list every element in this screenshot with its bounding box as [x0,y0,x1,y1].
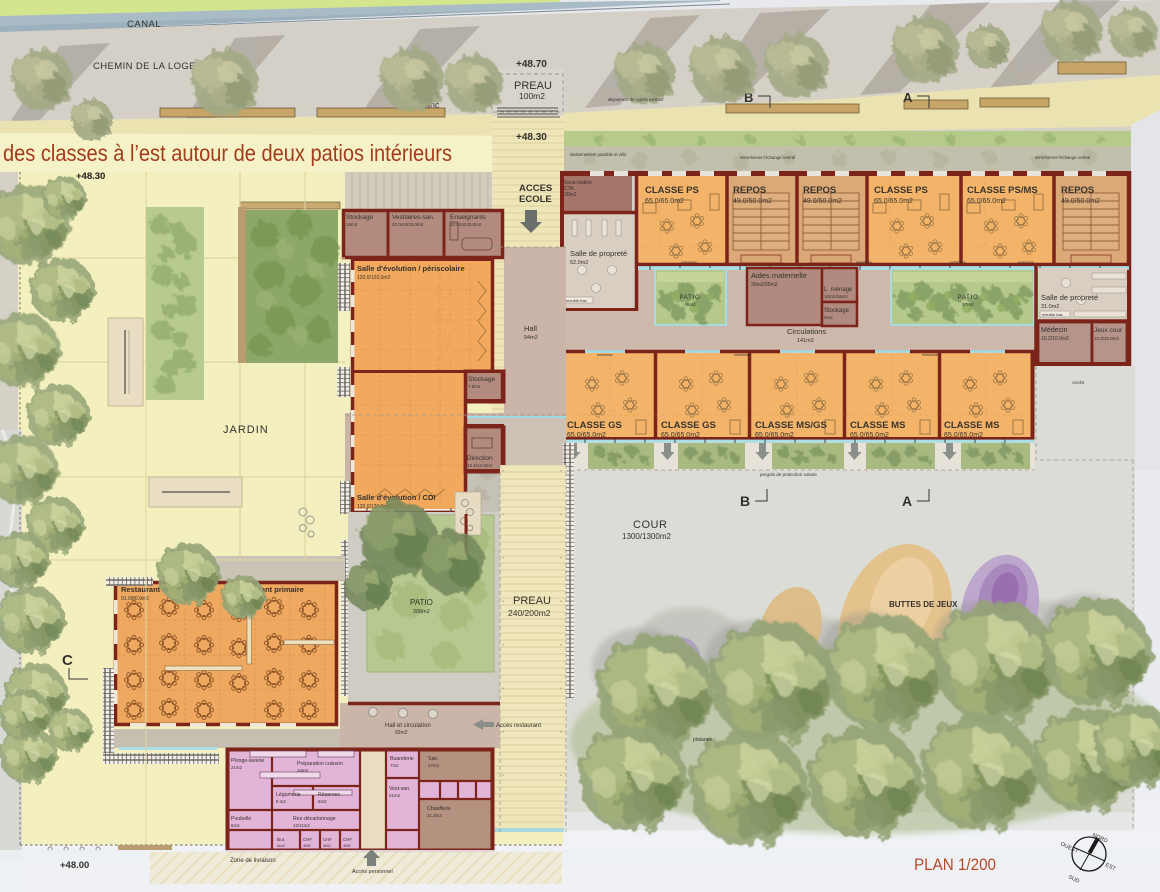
svg-text:CLASSE PS/MS: CLASSE PS/MS [967,185,1038,196]
svg-text:Légumerie: Légumerie [276,792,301,798]
svg-text:20.0m2/20.0m2: 20.0m2/20.0m2 [392,222,424,227]
svg-text:52.0m2: 52.0m2 [570,260,588,266]
svg-text:CLASSE MS: CLASSE MS [850,420,905,431]
svg-text:57m2: 57m2 [962,302,974,307]
svg-text:CHEMIN DE LA LOGE: CHEMIN DE LA LOGE [93,61,196,72]
svg-text:Stockage: Stockage [468,376,495,383]
svg-text:4m2: 4m2 [277,843,286,848]
svg-text:10m2/16m2: 10m2/16m2 [824,294,848,299]
svg-text:ACCES: ACCES [519,183,552,194]
svg-text:PLAN 1/200: PLAN 1/200 [914,855,996,874]
svg-text:CANAL: CANAL [127,19,161,30]
svg-text:CLASSE MS/GS: CLASSE MS/GS [755,420,827,431]
svg-text:entretoise: entretoise [950,261,966,265]
svg-text:7m2: 7m2 [390,763,399,768]
svg-text:entretoise: entretoise [597,353,613,357]
svg-text:BUTTES DE JEUX: BUTTES DE JEUX [889,600,958,609]
svg-text:Accès restaurant: Accès restaurant [496,723,541,729]
svg-text:CLASSE GS: CLASSE GS [661,420,716,431]
svg-text:alignement de cyprès existant: alignement de cyprès existant [608,97,664,102]
svg-text:CLASSE PS: CLASSE PS [874,185,928,196]
svg-text:Stockage: Stockage [346,214,373,221]
svg-text:entretoise: entretoise [734,353,750,357]
svg-text:entretoise: entretoise [1018,261,1034,265]
svg-text:entretoise: entretoise [922,353,938,357]
svg-text:Salle de propreté: Salle de propreté [1041,293,1098,302]
svg-text:des classes à l’est autour de: des classes à l’est autour de deux patio… [3,140,452,166]
svg-text:Médecin: Médecin [1041,327,1068,334]
svg-text:21m2: 21m2 [389,793,401,798]
svg-text:7.5m2: 7.5m2 [468,384,481,389]
svg-text:34m2: 34m2 [297,768,309,773]
svg-text:Hall et circulation: Hall et circulation [385,723,431,729]
svg-text:Réserves: Réserves [318,792,340,798]
svg-text:10.2/10.0m2: 10.2/10.0m2 [1094,336,1120,341]
svg-text:Chaufferie: Chaufferie [427,806,451,812]
svg-text:PATIO: PATIO [957,295,978,301]
svg-text:31.0m2: 31.0m2 [1041,304,1059,310]
svg-text:65.0/65.0m2: 65.0/65.0m2 [874,198,913,205]
svg-text:20.0m2/20.0m2: 20.0m2/20.0m2 [450,222,482,227]
svg-text:12.4/12.0m2: 12.4/12.0m2 [467,463,493,468]
svg-text:Buanderie: Buanderie [390,756,414,762]
svg-text:PATIO: PATIO [679,295,700,301]
svg-text:92m2: 92m2 [395,730,408,736]
svg-text:ECOLE: ECOLE [519,194,552,205]
svg-text:CLASSE MS: CLASSE MS [944,420,999,431]
svg-text:Jeux cour: Jeux cour [1094,327,1123,334]
svg-text:Rez-décartonnage: Rez-décartonnage [293,816,336,822]
svg-text:21.3m2: 21.3m2 [427,813,442,818]
svg-text:stationnement possible et vélo: stationnement possible et vélo [570,152,627,157]
svg-text:94m2: 94m2 [524,335,538,341]
svg-text:platanes: platanes [693,737,712,743]
svg-text:20m2: 20m2 [564,192,577,198]
svg-text:65.0/65.0m2: 65.0/65.0m2 [645,198,684,205]
svg-text:meuble bas: meuble bas [1042,312,1063,317]
svg-text:4M2: 4M2 [303,843,312,848]
svg-text:Stockage: Stockage [824,308,850,314]
svg-text:Préparation cuisson: Préparation cuisson [297,761,343,767]
svg-text:49.0/50.0m2: 49.0/50.0m2 [803,198,842,205]
svg-text:1300/1300m2: 1300/1300m2 [622,532,671,541]
svg-text:Aides maternelle: Aides maternelle [751,271,807,280]
svg-text:91.0/80.0m2: 91.0/80.0m2 [121,596,149,602]
svg-text:A: A [902,493,912,509]
svg-text:240/200m2: 240/200m2 [508,608,551,618]
svg-text:30m2/35m2: 30m2/35m2 [751,282,778,288]
svg-text:JARDIN: JARDIN [223,424,269,436]
svg-text:+48.70: +48.70 [516,59,547,70]
svg-text:Vestiaires-san.: Vestiaires-san. [392,214,435,221]
svg-text:COUR: COUR [633,519,667,531]
svg-text:PATIO: PATIO [410,598,433,607]
svg-text:10.2/10.0m2: 10.2/10.0m2 [1041,336,1069,342]
svg-text:Enseignants: Enseignants [450,214,487,221]
svg-text:12/11m2: 12/11m2 [293,823,310,828]
svg-text:serre/serres l'échange central: serre/serres l'échange central [1035,155,1090,160]
svg-text:4M2: 4M2 [323,843,332,848]
svg-text:Salle de propreté: Salle de propreté [570,249,627,258]
svg-text:206m2: 206m2 [413,609,430,615]
svg-text:Poubelle: Poubelle [231,816,251,822]
svg-text:21m2: 21m2 [231,765,243,770]
svg-text:CLASSE GS: CLASSE GS [567,420,622,431]
svg-text:Circulations: Circulations [787,327,826,336]
svg-text:15m2: 15m2 [346,222,358,227]
svg-text:5m2: 5m2 [824,315,833,320]
svg-text:6m2: 6m2 [231,823,240,828]
svg-text:REPOS: REPOS [733,185,766,196]
svg-text:Hall: Hall [524,324,537,333]
svg-text:entretoise: entretoise [681,261,697,265]
svg-text:49.0/50.0m2: 49.0/50.0m2 [733,198,772,205]
svg-text:65.0/65.0m2: 65.0/65.0m2 [661,432,700,439]
svg-text:CLASSE PS: CLASSE PS [645,185,699,196]
svg-text:65.0/65.0m2: 65.0/65.0m2 [944,432,983,439]
svg-text:100m2: 100m2 [519,91,545,101]
svg-text:entretoise: entretoise [856,261,872,265]
svg-text:65.0/65.0m2: 65.0/65.0m2 [850,432,889,439]
svg-text:+48.30: +48.30 [76,171,105,182]
svg-text:120.0/120.0m2: 120.0/120.0m2 [357,275,391,281]
svg-text:+48.30: +48.30 [516,132,547,143]
svg-text:meuble bas: meuble bas [566,298,587,303]
svg-text:Salle d'évolution / périscolai: Salle d'évolution / périscolaire [357,264,465,273]
svg-text:San.: San. [428,756,439,762]
svg-text:65.0/65.0m2: 65.0/65.0m2 [567,432,606,439]
svg-text:C: C [62,652,73,669]
svg-text:6m2: 6m2 [318,799,327,804]
svg-text:65.0/65.0m2: 65.0/65.0m2 [755,432,794,439]
svg-text:49.0/50.0m2: 49.0/50.0m2 [1061,198,1100,205]
svg-text:pergola de protection solaire: pergola de protection solaire [760,472,817,477]
svg-text:REPOS: REPOS [803,185,836,196]
svg-text:CHF: CHF [303,837,312,842]
svg-text:PREAU: PREAU [513,595,551,607]
svg-text:65.0/65.0m2: 65.0/65.0m2 [967,198,1006,205]
svg-text:8 m2: 8 m2 [276,799,286,804]
svg-text:CHF: CHF [343,837,352,842]
svg-text:Accès personnel: Accès personnel [352,869,393,875]
svg-text:48m2: 48m2 [684,302,696,307]
svg-text:141m2: 141m2 [797,338,814,344]
svg-text:Vest-san.: Vest-san. [389,786,411,792]
svg-text:B: B [740,493,750,509]
svg-text:4M2: 4M2 [343,843,352,848]
svg-text:+48.00: +48.00 [60,860,89,871]
svg-text:REPOS: REPOS [1061,185,1094,196]
svg-text:A: A [903,90,913,105]
svg-text:CHF: CHF [323,837,332,842]
svg-text:Plonge-laverie: Plonge-laverie [231,758,264,764]
svg-text:Direction: Direction [467,455,493,462]
svg-text:serre/serres l'échange central: serre/serres l'échange central [740,155,795,160]
svg-text:27m2: 27m2 [428,763,440,768]
svg-text:L. ménage: L. ménage [824,287,853,293]
svg-text:Zone de livraison: Zone de livraison [230,858,276,864]
svg-text:Accès: Accès [1072,380,1085,385]
